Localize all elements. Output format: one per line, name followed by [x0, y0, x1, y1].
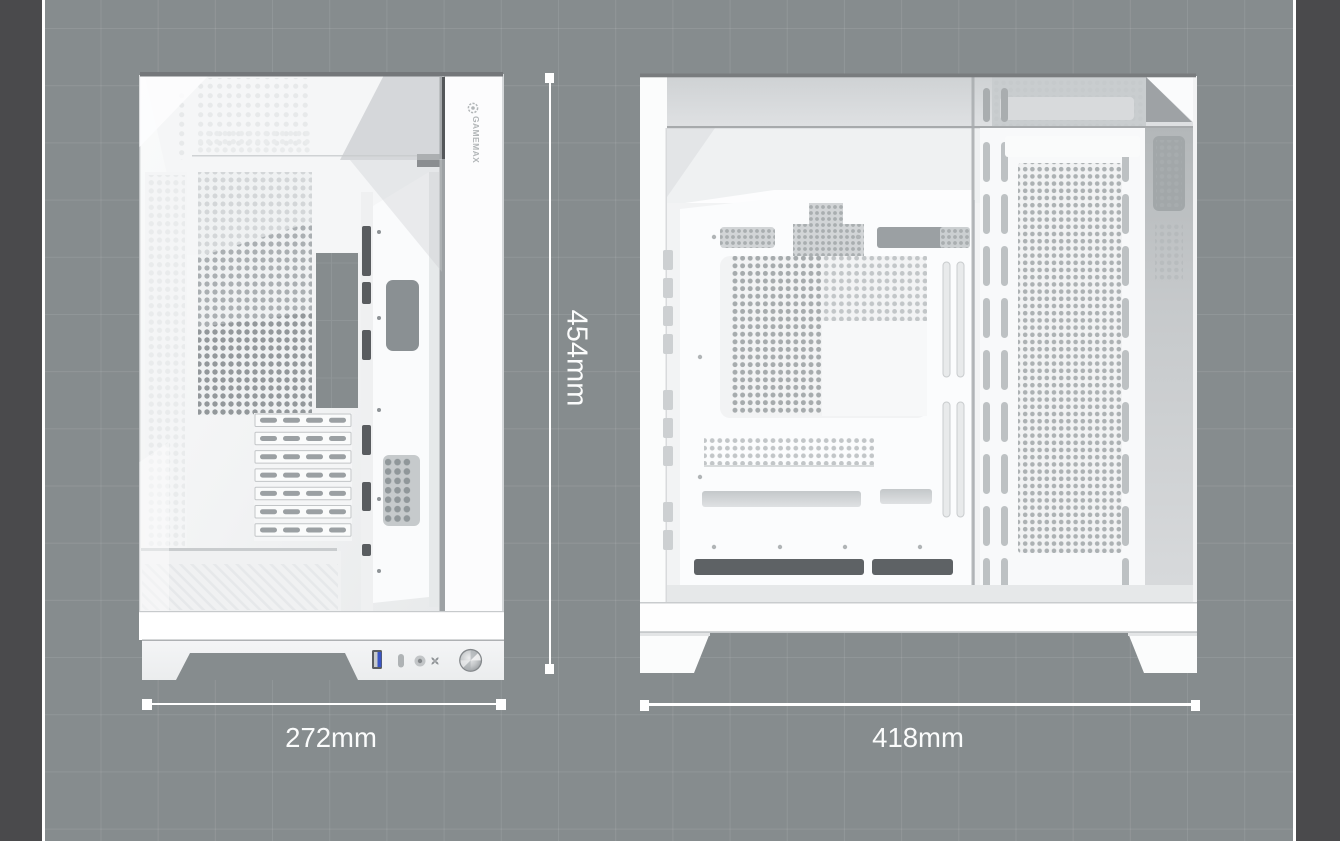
svg-text:GAMEMAX: GAMEMAX	[471, 116, 481, 163]
